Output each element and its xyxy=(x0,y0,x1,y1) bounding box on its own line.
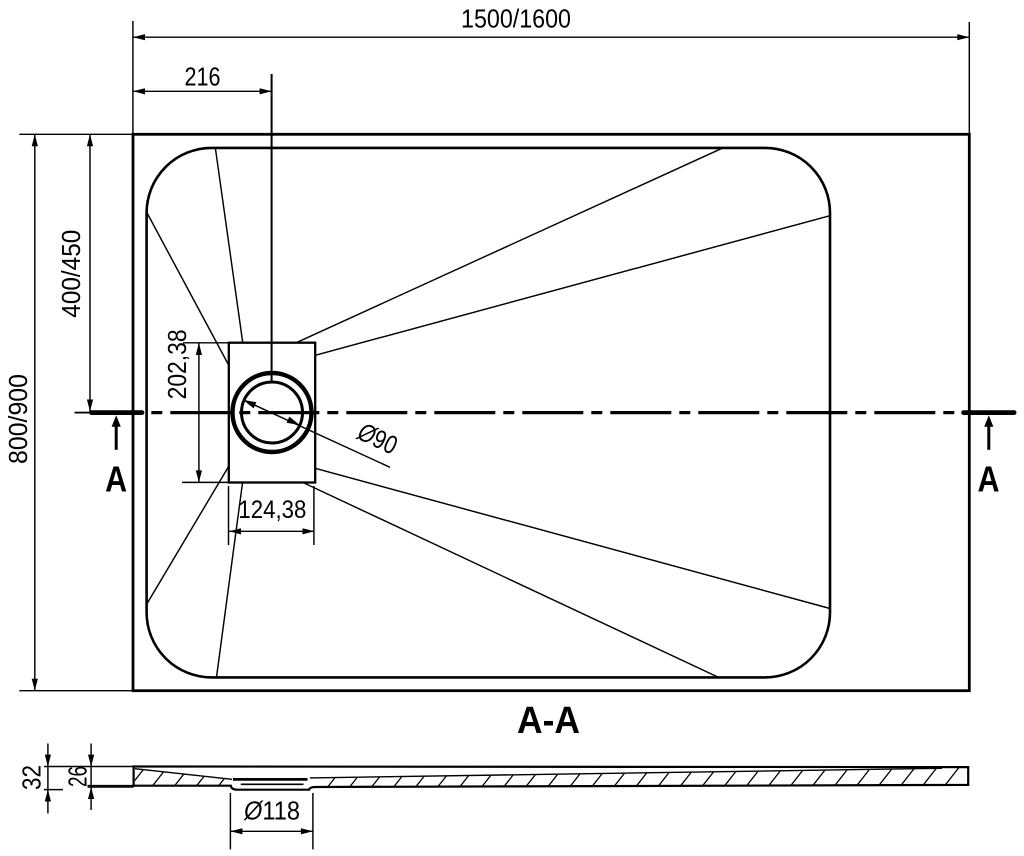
svg-text:202,38: 202,38 xyxy=(162,329,192,399)
svg-text:A-A: A-A xyxy=(517,700,580,742)
svg-text:216: 216 xyxy=(185,61,221,91)
svg-text:A: A xyxy=(105,459,127,500)
svg-text:400/450: 400/450 xyxy=(56,230,86,318)
svg-text:Ø118: Ø118 xyxy=(243,796,300,826)
svg-text:124,38: 124,38 xyxy=(238,496,306,524)
svg-text:32: 32 xyxy=(17,765,47,790)
svg-text:1500/1600: 1500/1600 xyxy=(461,4,571,34)
svg-text:A: A xyxy=(978,459,1000,500)
svg-text:26: 26 xyxy=(63,766,93,787)
svg-text:800/900: 800/900 xyxy=(3,374,33,464)
